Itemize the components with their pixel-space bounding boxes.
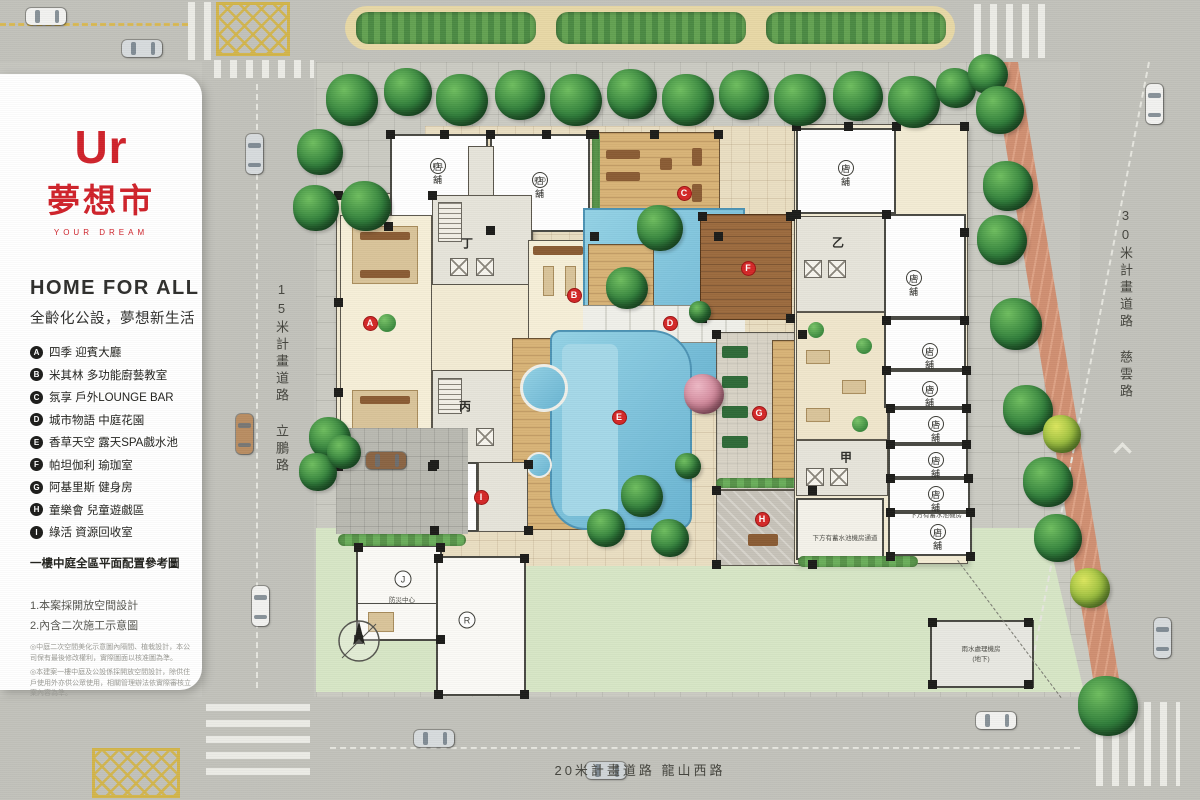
car-icon	[1146, 84, 1163, 124]
elevator	[476, 428, 494, 446]
bar-table	[692, 148, 702, 166]
amenity-marker-H: H	[755, 512, 770, 527]
tree	[1078, 676, 1138, 736]
column-marker	[440, 130, 449, 139]
bottom-road-label: 20米計畫道路 龍山西路	[554, 760, 725, 779]
lounge-seating	[806, 408, 830, 422]
annotation-text: 下方有蓄水池機房	[910, 509, 962, 519]
sofa	[360, 232, 410, 240]
median-hedge	[556, 12, 746, 44]
legend-item-E: E香草天空 露天SPA戲水池	[30, 434, 202, 450]
legend-item-A: A四季 迎賓大廳	[30, 344, 202, 360]
compass-icon	[336, 618, 382, 664]
column-marker	[590, 232, 599, 241]
amenity-marker-B: B	[567, 288, 582, 303]
lounge-seating	[806, 350, 830, 364]
column-marker	[798, 330, 807, 339]
tree	[326, 74, 378, 126]
column-marker	[590, 130, 599, 139]
tree	[550, 74, 602, 126]
right-road-chevron-arrows	[1116, 440, 1136, 510]
legend-badge: C	[30, 391, 43, 404]
lounge-seating	[842, 380, 866, 394]
tree	[606, 267, 648, 309]
tree	[976, 86, 1024, 134]
tree	[621, 475, 663, 517]
fine-print-line: ◎中庭二次空間美化示意圖內隔間、植栽設計，本公司保有最後修改權利，實際圖面以核准…	[30, 643, 194, 665]
column-marker	[434, 554, 443, 563]
car-icon	[246, 134, 263, 174]
amenity-marker-F: F	[741, 261, 756, 276]
legend-badge: F	[30, 458, 43, 471]
column-marker	[960, 228, 969, 237]
east-lower-rooms	[796, 498, 884, 560]
column-marker	[960, 316, 969, 325]
legend-item-I: I綠活 資源回收室	[30, 524, 202, 540]
brand-logo: Ur 夢想市 YOUR DREAM	[0, 124, 202, 237]
shop-text: 店舖	[925, 383, 935, 409]
amenity-marker-D: D	[663, 316, 678, 331]
legend-item-F: F帕坦伽利 瑜珈室	[30, 457, 202, 473]
legend-label: 城市物語 中庭花園	[49, 412, 144, 428]
column-marker	[886, 508, 895, 517]
legend-label: 童樂會 兒童遊戲區	[49, 502, 144, 518]
tree	[637, 205, 683, 251]
tree	[689, 301, 711, 323]
yellow-box-junction-top	[216, 2, 290, 56]
tree	[1034, 514, 1082, 562]
notes-list: 1.本案採開放空間設計2.內含二次施工示意圖	[30, 597, 202, 633]
column-marker	[966, 552, 975, 561]
column-marker	[542, 130, 551, 139]
legend-badge: B	[30, 368, 43, 381]
shop-text: 店舖	[925, 345, 935, 371]
legend-label: 阿基里斯 健身房	[49, 479, 133, 495]
column-marker	[882, 366, 891, 375]
column-marker	[698, 212, 707, 221]
logo-tagline: YOUR DREAM	[0, 228, 202, 237]
column-marker	[808, 486, 817, 495]
tree	[587, 509, 625, 547]
amenity-marker-C: C	[677, 186, 692, 201]
tree	[495, 70, 545, 120]
legend-badge: I	[30, 526, 43, 539]
column-marker	[430, 526, 439, 535]
column-marker	[1024, 618, 1033, 627]
median-hedge	[766, 12, 946, 44]
tower-label: 甲	[840, 449, 852, 466]
car-icon	[1154, 618, 1171, 658]
tree	[1023, 457, 1073, 507]
shop-text: 店舖	[909, 272, 919, 298]
sofa	[360, 270, 410, 278]
gym-mat	[722, 346, 748, 358]
column-marker	[808, 560, 817, 569]
pool-lane	[562, 344, 618, 516]
column-marker	[436, 635, 445, 644]
column-marker	[434, 690, 443, 699]
car-icon	[26, 8, 66, 25]
shop-text: 店舖	[433, 160, 443, 186]
crosswalk-bottom-left	[206, 704, 310, 776]
legend-badge: E	[30, 436, 43, 449]
shop-room-p8	[884, 214, 966, 318]
legend-label: 綠活 資源回收室	[49, 524, 133, 540]
bottom-road-center-line	[330, 747, 1080, 749]
column-marker	[486, 130, 495, 139]
legend-item-C: C氛享 戶外LOUNGE BAR	[30, 389, 202, 405]
tower-label: 丙	[459, 398, 471, 415]
column-marker	[520, 554, 529, 563]
shrub-pink	[684, 374, 724, 414]
kitchen-counter	[533, 246, 583, 255]
column-marker	[966, 508, 975, 517]
column-marker	[386, 130, 395, 139]
column-marker	[882, 316, 891, 325]
right-road-label: 30米計畫道路 慈雲路	[1116, 208, 1135, 401]
lobby-plant	[378, 314, 396, 332]
elevator	[806, 468, 824, 486]
play-equipment	[748, 534, 778, 546]
crosswalk-top-right	[974, 4, 1054, 58]
column-marker	[962, 366, 971, 375]
column-marker	[714, 130, 723, 139]
bar-table	[660, 158, 672, 170]
tree	[436, 74, 488, 126]
tree	[662, 74, 714, 126]
column-marker	[962, 404, 971, 413]
tree	[719, 70, 769, 120]
circle-label-R: R	[459, 612, 476, 629]
tree	[1070, 568, 1110, 608]
column-marker	[882, 210, 891, 219]
median-hedge	[356, 12, 536, 44]
elevator	[830, 468, 848, 486]
elevator	[476, 258, 494, 276]
legend-item-D: D城市物語 中庭花園	[30, 412, 202, 428]
column-marker	[430, 460, 439, 469]
crosswalk-top-mid	[214, 60, 314, 78]
gym-mat	[722, 406, 748, 418]
yellow-box-junction-bottom	[92, 748, 180, 798]
amenity-marker-I: I	[474, 490, 489, 505]
plan-caption: 一樓中庭全區平面配置參考圖	[30, 555, 202, 571]
tree	[675, 453, 701, 479]
bench	[606, 172, 640, 181]
tree	[651, 519, 689, 557]
tree	[977, 215, 1027, 265]
amenity-marker-G: G	[752, 406, 767, 421]
info-panel: Ur 夢想市 YOUR DREAM HOME FOR ALL 全齡化公設，夢想新…	[0, 74, 202, 690]
shop-text: 店舖	[933, 526, 943, 552]
shop-text: 店舖	[931, 454, 941, 480]
tree	[833, 71, 883, 121]
gym-mat	[722, 436, 748, 448]
annotation-text: (地下)	[972, 653, 989, 663]
column-marker	[928, 618, 937, 627]
elevator	[828, 260, 846, 278]
column-marker	[486, 226, 495, 235]
column-marker	[962, 440, 971, 449]
legend-label: 帕坦伽利 瑜珈室	[49, 457, 133, 473]
legend-label: 香草天空 露天SPA戲水池	[49, 434, 178, 450]
column-marker	[844, 122, 853, 131]
car-icon	[252, 586, 269, 626]
column-marker	[1024, 680, 1033, 689]
elevator	[450, 258, 468, 276]
panel-subtitle: 全齡化公設，夢想新生活	[30, 307, 202, 328]
column-marker	[334, 298, 343, 307]
dining-table	[543, 266, 554, 296]
column-marker	[792, 210, 801, 219]
logo-chinese: 夢想市	[0, 174, 202, 222]
shop-text: 店舖	[841, 162, 851, 188]
tree	[341, 181, 391, 231]
tree	[983, 161, 1033, 211]
legend-badge: H	[30, 503, 43, 516]
amenity-marker-E: E	[612, 410, 627, 425]
column-marker	[712, 560, 721, 569]
shop-text: 店舖	[535, 174, 545, 200]
tree	[990, 298, 1042, 350]
column-marker	[886, 440, 895, 449]
annotation-text: 防災中心	[389, 594, 415, 604]
bar-table	[692, 184, 702, 202]
column-marker	[354, 543, 363, 552]
amenity-legend: A四季 迎賓大廳B米其林 多功能廚藝教室C氛享 戶外LOUNGE BARD城市物…	[30, 344, 202, 540]
tower-label: 乙	[832, 234, 844, 251]
column-marker	[928, 680, 937, 689]
building-r	[436, 556, 526, 696]
column-marker	[714, 232, 723, 241]
legend-label: 氛享 戶外LOUNGE BAR	[49, 389, 174, 405]
column-marker	[712, 330, 721, 339]
legend-item-G: G阿基里斯 健身房	[30, 479, 202, 495]
column-marker	[650, 130, 659, 139]
column-marker	[886, 474, 895, 483]
tree	[297, 129, 343, 175]
column-marker	[712, 486, 721, 495]
lounge-plant	[856, 338, 872, 354]
tree	[1043, 415, 1081, 453]
car-icon	[976, 712, 1016, 729]
column-marker	[960, 122, 969, 131]
round-spa-pool	[520, 364, 568, 412]
legend-badge: D	[30, 413, 43, 426]
tree	[774, 74, 826, 126]
tree	[384, 68, 432, 116]
logo-text: Ur	[74, 121, 127, 173]
tree	[888, 76, 940, 128]
column-marker	[886, 552, 895, 561]
column-marker	[964, 474, 973, 483]
gym-mat	[722, 376, 748, 388]
column-marker	[436, 543, 445, 552]
tree	[293, 185, 339, 231]
stairwell	[438, 202, 462, 242]
legend-label: 米其林 多功能廚藝教室	[49, 367, 167, 383]
shop-text: 店舖	[931, 418, 941, 444]
note-line: 2.內含二次施工示意圖	[30, 617, 202, 633]
car-icon	[122, 40, 162, 57]
column-marker	[520, 690, 529, 699]
lounge-plant	[852, 416, 868, 432]
legend-item-H: H童樂會 兒童遊戲區	[30, 502, 202, 518]
elevator	[804, 260, 822, 278]
column-marker	[886, 404, 895, 413]
legend-item-B: B米其林 多功能廚藝教室	[30, 367, 202, 383]
car-icon	[414, 730, 454, 747]
column-marker	[334, 388, 343, 397]
lounge-plant	[808, 322, 824, 338]
legend-badge: A	[30, 346, 43, 359]
left-road	[202, 0, 314, 800]
column-marker	[524, 460, 533, 469]
tower-label: 丁	[461, 235, 473, 252]
column-marker	[384, 222, 393, 231]
crosswalk-top-left	[188, 2, 212, 60]
annotation-text: 下方有蓄水池機房通道	[813, 532, 878, 542]
bench	[606, 150, 640, 159]
fine-print: ◎中庭二次空間美化示意圖內隔間、植栽設計，本公司保有最後修改權利，實際圖面以核准…	[30, 643, 194, 700]
tree	[607, 69, 657, 119]
left-road-label: 15米計畫道路 立鵬路	[272, 282, 291, 475]
site-plan-canvas: ABCDEFGHIP11店舖P10店舖P9店舖P8店舖P7店舖P6店舖P5店舖P…	[0, 0, 1200, 800]
tree	[327, 435, 361, 469]
legend-badge: G	[30, 481, 43, 494]
fine-print-line: ◎本建案一樓中庭及公設係採開放空間設計，除供住戶使用外亦供公眾使用，相關管理辦法…	[30, 668, 194, 701]
car-icon	[236, 414, 253, 454]
column-marker	[524, 526, 533, 535]
amenity-marker-A: A	[363, 316, 378, 331]
column-marker	[428, 191, 437, 200]
car-icon	[366, 452, 406, 469]
legend-label: 四季 迎賓大廳	[49, 344, 121, 360]
note-line: 1.本案採開放空間設計	[30, 597, 202, 613]
column-marker	[786, 314, 795, 323]
sofa	[360, 396, 410, 404]
annotation-text: 雨水處理機房	[962, 643, 1001, 653]
panel-title: HOME FOR ALL	[30, 277, 202, 300]
circle-label-J: J	[395, 571, 412, 588]
